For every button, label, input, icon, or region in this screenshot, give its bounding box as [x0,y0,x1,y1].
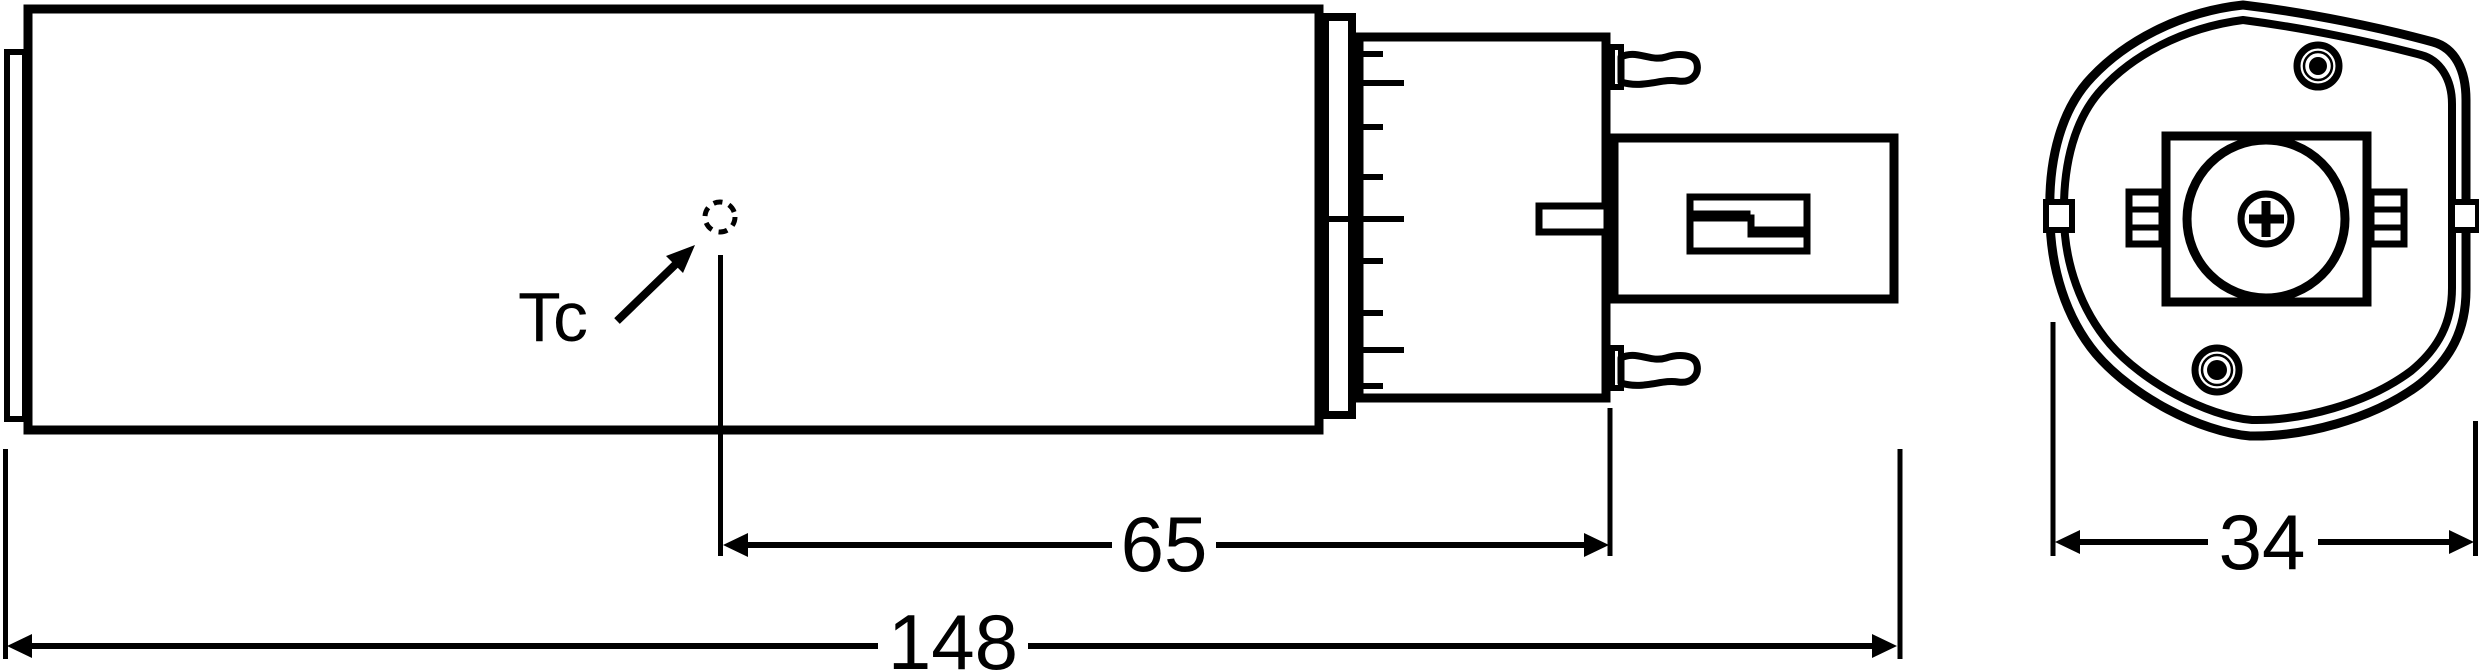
arrowhead-right-icon [1872,634,1897,658]
end-view [2046,5,2478,436]
arrowhead-left-icon [2055,530,2080,554]
side-tab-right [2371,192,2404,244]
lamp-end-cap [7,52,25,419]
technical-dimension-drawing: Tc 65 148 [0,0,2479,671]
dim-34-value: 34 [2219,498,2306,586]
dim-148: 148 [7,598,1897,671]
screw-center [2309,57,2327,75]
arrowhead-left-icon [7,634,32,658]
tc-label: Tc [518,278,588,356]
dim-65: 65 [723,500,1609,588]
dim-65-value: 65 [1121,500,1208,588]
base-pin-bottom [1621,355,1697,385]
side-view [7,9,1894,430]
drawing-canvas: Tc 65 148 [0,0,2479,671]
base-pin-top [1621,54,1697,84]
screw-bottom-icon [2195,348,2239,392]
arrowhead-right-icon [2449,530,2474,554]
keyway-notch-right [2452,202,2478,230]
arrowhead-right-icon [1584,533,1609,557]
keyway-notch-left [2046,202,2072,230]
screw-center [2207,360,2227,380]
dim-34: 34 [2055,498,2474,586]
tab-outline [2371,192,2404,244]
tab-outline [2129,192,2162,244]
arrowhead-left-icon [723,533,748,557]
lamp-body [28,9,1319,430]
base-key-tab [1539,206,1607,232]
connector-contacts-icon [1690,197,1807,251]
screw-top-icon [2297,45,2339,87]
side-tab-left [2129,192,2162,244]
dim-148-value: 148 [888,598,1018,671]
